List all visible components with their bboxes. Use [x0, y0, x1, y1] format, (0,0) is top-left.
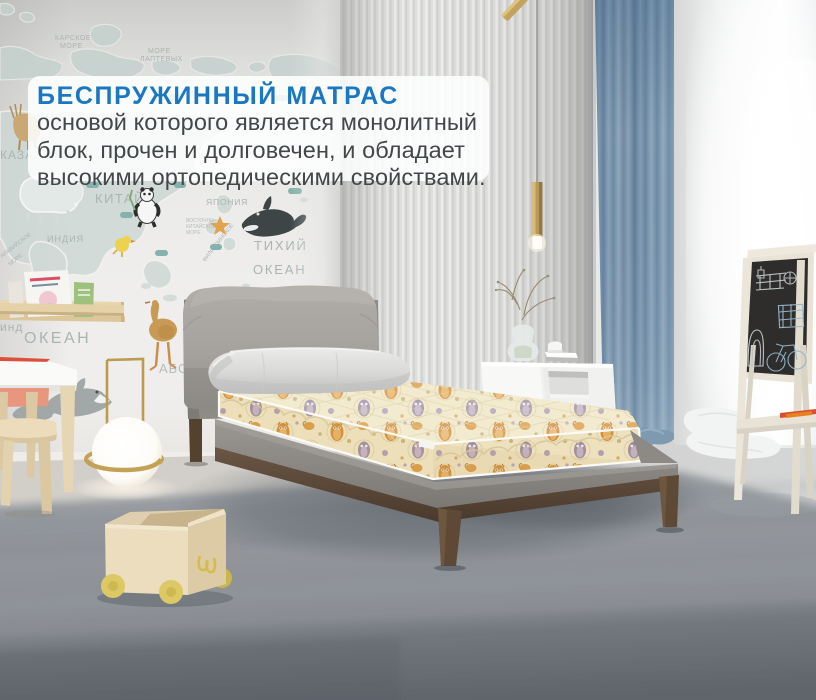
svg-text:МОРЕ: МОРЕ [148, 48, 171, 55]
svg-text:МОРЕ: МОРЕ [186, 230, 201, 236]
svg-text:КАРСКОЕ: КАРСКОЕ [55, 35, 91, 42]
svg-text:ОКЕАН: ОКЕАН [24, 330, 91, 347]
svg-text:инд: инд [0, 320, 23, 334]
svg-text:ЯПОНИЯ: ЯПОНИЯ [206, 197, 248, 207]
svg-text:ЛАПТЕВЫХ: ЛАПТЕВЫХ [140, 56, 183, 63]
svg-text:ИНДИЯ: ИНДИЯ [47, 234, 84, 244]
svg-text:МОРЕ: МОРЕ [60, 43, 83, 50]
